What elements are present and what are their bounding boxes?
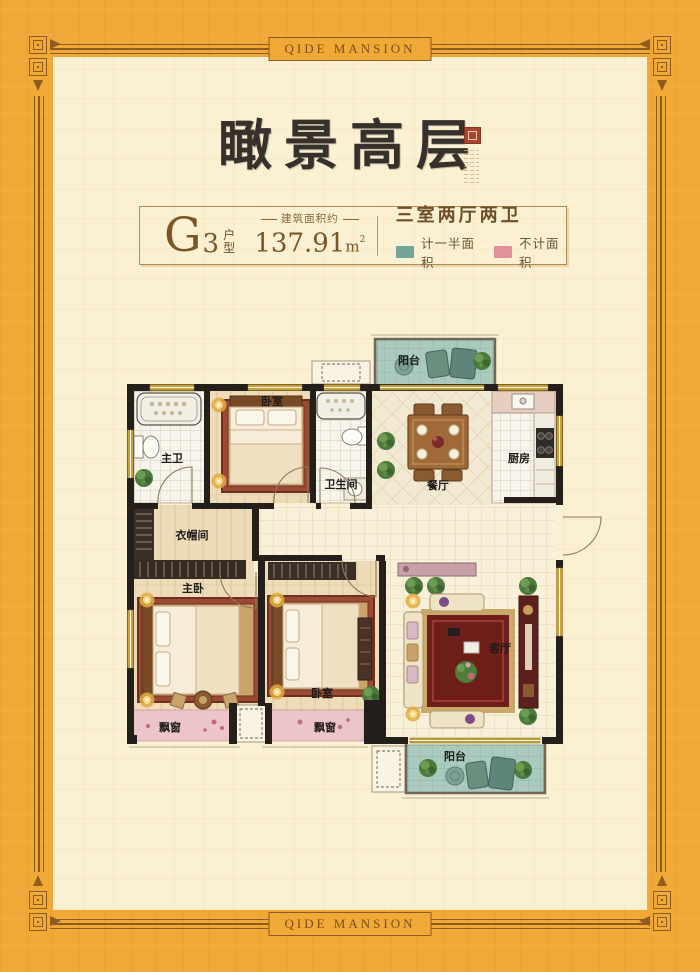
dining-table-icon xyxy=(408,404,468,481)
label-master-bath: 主卫 xyxy=(161,451,183,465)
plant-icon xyxy=(427,577,445,595)
label-bathroom: 卫生间 xyxy=(325,477,358,491)
living-rug-icon xyxy=(424,612,512,710)
plant-icon xyxy=(519,707,537,725)
bed-master-icon xyxy=(138,593,260,708)
plant-icon xyxy=(519,577,537,595)
label-living: 客厅 xyxy=(488,641,511,655)
tv-cabinet-icon xyxy=(519,596,538,708)
bathtub-icon xyxy=(317,393,365,419)
label-balcony-bottom: 阳台 xyxy=(444,749,466,763)
floor-plan: 阳台 主卫 卧室 卫生间 餐厅 厨房 衣帽间 主卧 卧室 客厅 飘窗 飘窗 阳台 xyxy=(0,0,700,972)
label-dining: 餐厅 xyxy=(426,478,449,492)
plant-icon xyxy=(377,461,395,479)
label-master-bedroom: 主卧 xyxy=(182,581,204,595)
plant-icon xyxy=(377,432,395,450)
plant-icon xyxy=(405,577,423,595)
hallway-floor xyxy=(258,505,555,561)
label-cloakroom: 衣帽间 xyxy=(176,528,209,542)
plant-icon xyxy=(135,469,153,487)
dresser-icon xyxy=(358,618,372,680)
label-bay-left: 飘窗 xyxy=(159,720,181,734)
label-kitchen: 厨房 xyxy=(508,451,530,465)
label-bay-right: 飘窗 xyxy=(314,720,336,734)
label-bedroom-second: 卧室 xyxy=(311,686,333,700)
label-bedroom-top: 卧室 xyxy=(261,394,283,408)
toilet-icon xyxy=(134,436,159,458)
bathtub-icon xyxy=(137,393,201,425)
bed-top-icon xyxy=(212,396,311,492)
console-table-icon xyxy=(398,563,476,576)
door-entry xyxy=(563,517,601,555)
label-balcony-top: 阳台 xyxy=(398,353,420,367)
